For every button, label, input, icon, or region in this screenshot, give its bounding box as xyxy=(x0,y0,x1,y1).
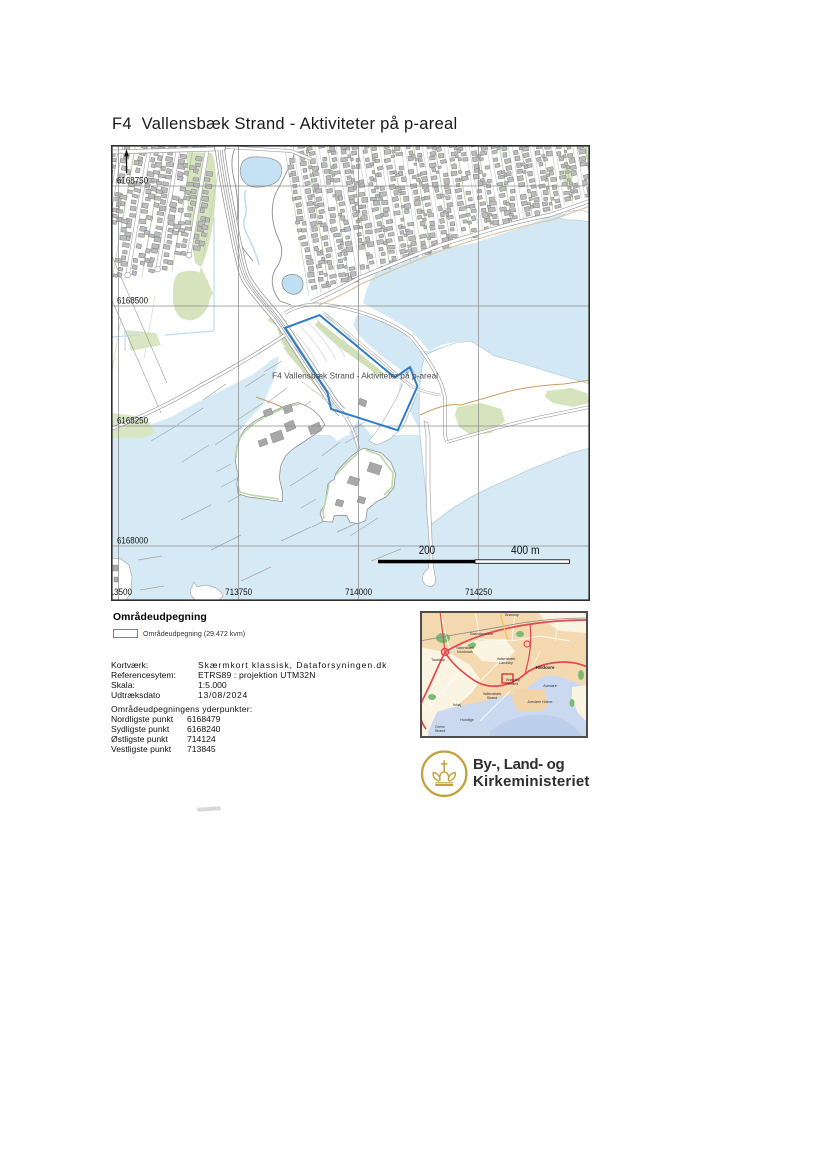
svg-text:714000: 714000 xyxy=(345,587,372,598)
svg-text:713500: 713500 xyxy=(111,587,132,598)
svg-text:Brøndbyvester: Brøndbyvester xyxy=(470,632,494,636)
svg-text:Avedøre: Avedøre xyxy=(543,684,557,688)
svg-text:F4 Vallensbæk Strand - Aktivit: F4 Vallensbæk Strand - Aktiviteter på p-… xyxy=(272,371,438,381)
svg-text:Landsby: Landsby xyxy=(499,661,513,665)
svg-text:6168750: 6168750 xyxy=(117,176,148,187)
svg-text:200: 200 xyxy=(419,543,436,557)
svg-text:Taastrup: Taastrup xyxy=(431,658,445,662)
svg-text:714250: 714250 xyxy=(465,587,492,598)
svg-text:Nordmark: Nordmark xyxy=(457,650,473,654)
svg-text:Strand: Strand xyxy=(487,696,498,700)
svg-text:Strand: Strand xyxy=(435,729,446,733)
svg-text:6168000: 6168000 xyxy=(117,536,148,547)
svg-text:Ishøj: Ishøj xyxy=(453,703,461,707)
svg-text:Hvidovre: Hvidovre xyxy=(536,665,555,670)
svg-text:6168250: 6168250 xyxy=(117,416,148,427)
svg-text:Brøndup: Brøndup xyxy=(505,613,519,617)
svg-text:Hundige: Hundige xyxy=(460,718,473,722)
svg-text:Avedøre Holme: Avedøre Holme xyxy=(528,700,553,704)
svg-text:713750: 713750 xyxy=(225,587,252,598)
svg-text:400 m: 400 m xyxy=(511,543,540,557)
svg-text:6168500: 6168500 xyxy=(117,296,148,307)
